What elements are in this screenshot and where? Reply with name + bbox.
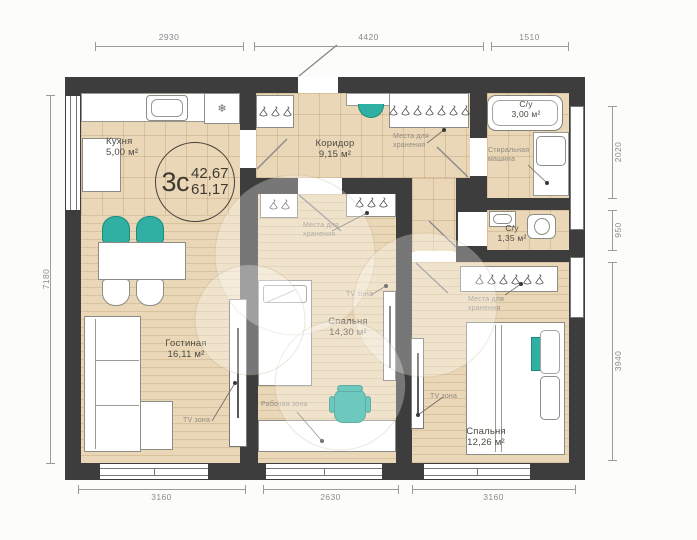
dining-chair-white bbox=[136, 279, 164, 306]
dining-chair-teal bbox=[136, 216, 164, 243]
dim-top-1: 2930 bbox=[95, 32, 243, 42]
room-label-bedroom-right: Спальня 12,26 м² bbox=[450, 426, 522, 448]
hanger-icon bbox=[436, 103, 447, 118]
hanger-icon bbox=[412, 103, 423, 118]
window-living bbox=[100, 464, 208, 479]
sofa-chaise bbox=[140, 401, 173, 450]
window-kitchen-left bbox=[66, 96, 80, 210]
washing-machine bbox=[536, 136, 566, 166]
fridge-icon: ❄ bbox=[217, 102, 226, 115]
hanger-icon bbox=[498, 272, 509, 287]
living-area-value: 42,67 bbox=[191, 166, 229, 182]
floor-plan: ❄ bbox=[0, 0, 697, 540]
wall-bedroom-middle-right bbox=[396, 194, 412, 463]
tv-panel-bedroom-middle bbox=[383, 291, 396, 381]
wardrobe-bedroom-middle-left bbox=[260, 190, 298, 218]
tv-panel-bedroom-right bbox=[411, 338, 424, 429]
hanger-icon bbox=[388, 103, 399, 118]
zone-label-storage-bedroom-right: Места для хранения bbox=[468, 296, 504, 313]
wardrobe-bedroom-right bbox=[460, 266, 558, 292]
desk bbox=[258, 420, 396, 452]
wardrobe-corridor-left bbox=[256, 95, 294, 128]
window-bedroom-middle bbox=[266, 464, 382, 479]
hanger-icon bbox=[258, 104, 269, 119]
hanger-icon bbox=[268, 197, 279, 212]
room-label-bedroom-middle: Спальня 14,30 м² bbox=[312, 316, 384, 338]
hanger-icon bbox=[448, 103, 459, 118]
room-area: 3,00 м² bbox=[498, 109, 554, 119]
office-chair-arm bbox=[329, 396, 335, 413]
room-name: Спальня bbox=[450, 426, 522, 437]
bed-pillow bbox=[540, 330, 560, 374]
room-label-corridor: Коридор 9,15 м² bbox=[300, 138, 370, 160]
wardrobe-corridor-right bbox=[389, 93, 469, 128]
zone-label-tv-bedroom-middle: TV зона bbox=[346, 291, 373, 300]
room-name: Кухня bbox=[106, 136, 138, 147]
duct-shaft bbox=[570, 106, 584, 230]
bed-pillow bbox=[540, 376, 560, 420]
hanger-icon bbox=[366, 195, 377, 210]
dining-table bbox=[98, 242, 186, 280]
hanger-icon bbox=[460, 103, 471, 118]
door-bedroom-right bbox=[415, 251, 454, 261]
hanger-icon bbox=[474, 272, 485, 287]
hanger-icon bbox=[270, 104, 281, 119]
dim-bottom-3: 3160 bbox=[412, 492, 575, 502]
office-chair bbox=[334, 389, 366, 423]
hanger-icon bbox=[522, 272, 533, 287]
hanger-icon bbox=[400, 103, 411, 118]
hanger-icon bbox=[282, 104, 293, 119]
window-bedroom-right bbox=[424, 464, 530, 479]
office-chair-back bbox=[337, 385, 363, 392]
hanger-icon bbox=[424, 103, 435, 118]
room-label-kitchen: Кухня 5,00 м² bbox=[106, 136, 138, 158]
tv-panel-living bbox=[229, 299, 247, 447]
total-area-value: 61,17 bbox=[191, 182, 229, 198]
zone-label-tv-bedroom-right: TV зона bbox=[430, 393, 457, 402]
room-area: 1,35 м² bbox=[486, 233, 538, 243]
hanger-icon bbox=[280, 197, 291, 212]
dim-top-3: 1510 bbox=[491, 32, 568, 42]
door-bedroom-middle bbox=[298, 178, 342, 194]
zone-label-work: Рабочая зона bbox=[261, 401, 308, 410]
room-area: 16,11 м² bbox=[150, 349, 222, 360]
hanger-icon bbox=[354, 195, 365, 210]
corridor-branch-floor bbox=[412, 178, 456, 252]
zone-label-tv-living: TV зона bbox=[183, 417, 210, 426]
hanger-icon bbox=[486, 272, 497, 287]
dim-right-1: 2020 bbox=[613, 132, 623, 172]
hanger-icon bbox=[534, 272, 545, 287]
plan-type: 3с bbox=[161, 167, 189, 198]
zone-label-washer: Стиральная машина bbox=[488, 147, 529, 164]
room-label-bathroom: С/у 3,00 м² bbox=[498, 99, 554, 119]
door-bathroom bbox=[470, 138, 487, 176]
dim-bottom-2: 2630 bbox=[263, 492, 398, 502]
room-area: 14,30 м² bbox=[312, 327, 384, 338]
zone-label-storage-bedroom-middle: Места для хранения bbox=[303, 222, 339, 239]
kitchen-sink-basin bbox=[151, 99, 183, 117]
dim-bottom-1: 3160 bbox=[78, 492, 245, 502]
sofa bbox=[84, 316, 141, 452]
room-name: Гостиная bbox=[150, 338, 222, 349]
dining-chair-white bbox=[102, 279, 130, 306]
room-label-wc: С/у 1,35 м² bbox=[486, 223, 538, 243]
door-entrance bbox=[298, 77, 338, 93]
wall-bathroom-wc-divider bbox=[487, 198, 569, 210]
room-name: Спальня bbox=[312, 316, 384, 327]
room-name: С/у bbox=[498, 99, 554, 109]
bed-single-pillow bbox=[263, 285, 307, 303]
duct-shaft bbox=[570, 257, 584, 318]
dining-chair-teal bbox=[102, 216, 130, 243]
hanger-icon bbox=[378, 195, 389, 210]
dim-right-3: 3940 bbox=[613, 341, 623, 381]
door-kitchen bbox=[240, 130, 256, 168]
room-label-living: Гостиная 16,11 м² bbox=[150, 338, 222, 360]
dim-top-2: 4420 bbox=[254, 32, 483, 42]
wall-wc-bottom bbox=[456, 250, 569, 262]
room-area: 9,15 м² bbox=[300, 149, 370, 160]
office-chair-arm bbox=[365, 396, 371, 413]
room-area: 12,26 м² bbox=[450, 437, 522, 448]
fridge: ❄ bbox=[204, 93, 240, 124]
dim-left-1: 7180 bbox=[41, 259, 51, 299]
room-name: Коридор bbox=[300, 138, 370, 149]
room-area: 5,00 м² bbox=[106, 147, 138, 158]
plan-type-badge: 3с 42,67 61,17 bbox=[155, 142, 235, 222]
door-wc bbox=[458, 212, 487, 246]
hanger-icon bbox=[510, 272, 521, 287]
room-name: С/у bbox=[486, 223, 538, 233]
dim-right-2: 950 bbox=[613, 210, 623, 250]
zone-label-storage-corridor: Места для хранения bbox=[393, 133, 429, 150]
